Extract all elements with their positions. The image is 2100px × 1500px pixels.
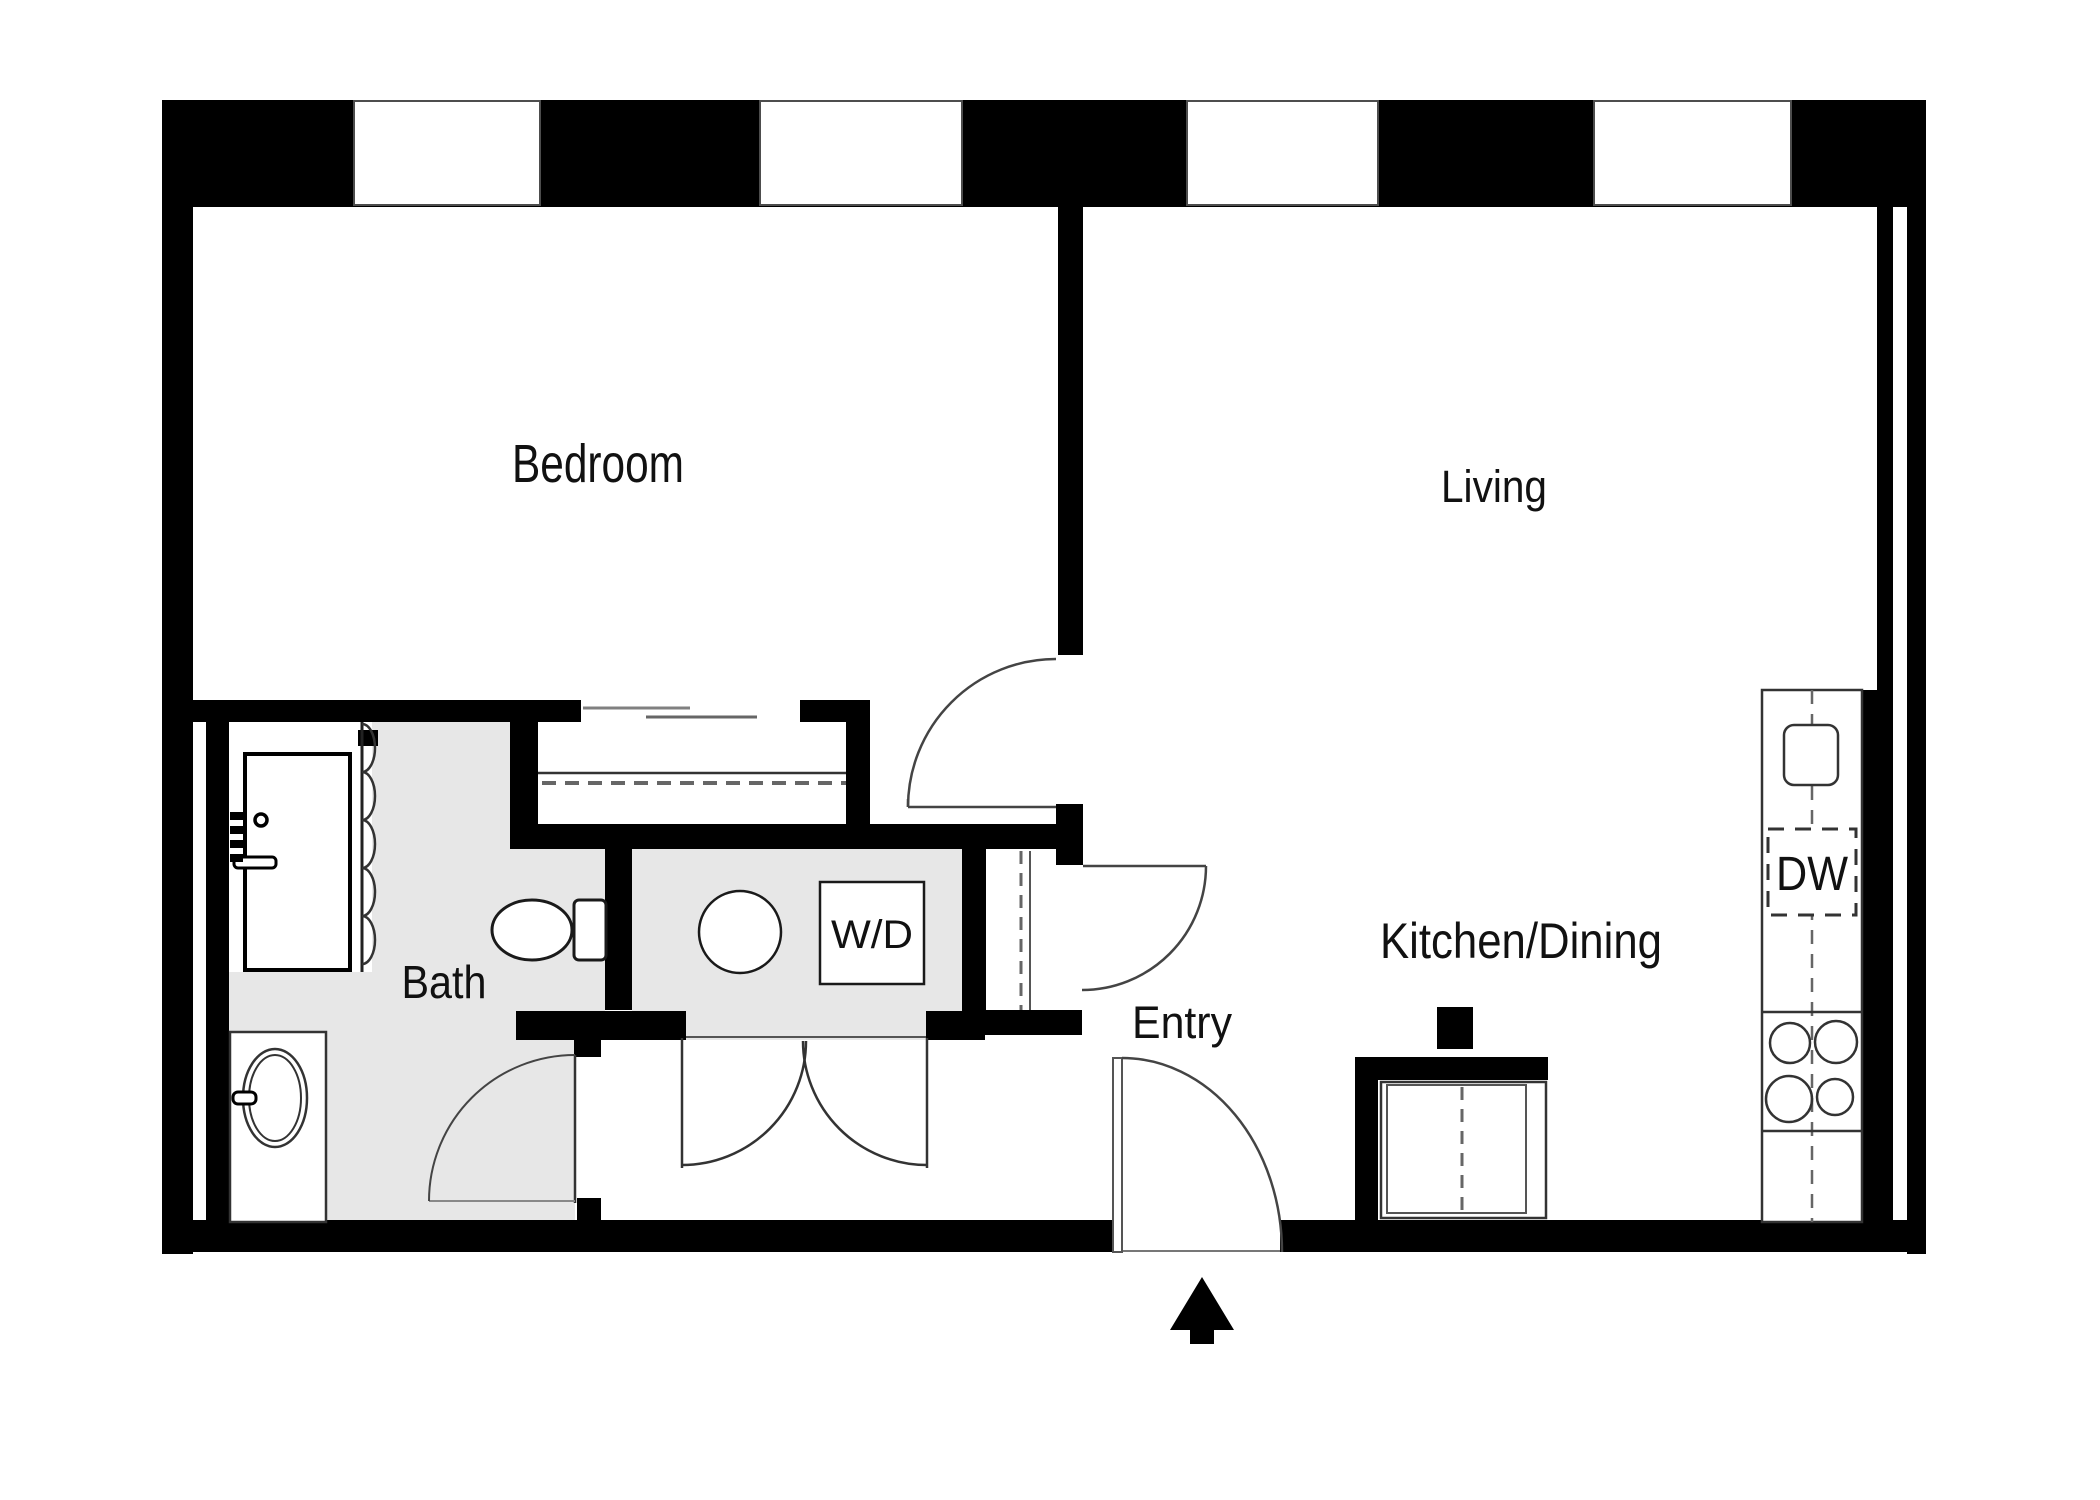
svg-text:Bedroom: Bedroom bbox=[512, 434, 684, 494]
svg-text:DW: DW bbox=[1776, 848, 1849, 901]
svg-text:Bath: Bath bbox=[402, 956, 487, 1008]
svg-text:Entry: Entry bbox=[1132, 997, 1232, 1048]
svg-text:Kitchen/Dining: Kitchen/Dining bbox=[1380, 913, 1662, 969]
svg-text:Living: Living bbox=[1441, 461, 1547, 512]
svg-text:W/D: W/D bbox=[831, 913, 913, 957]
